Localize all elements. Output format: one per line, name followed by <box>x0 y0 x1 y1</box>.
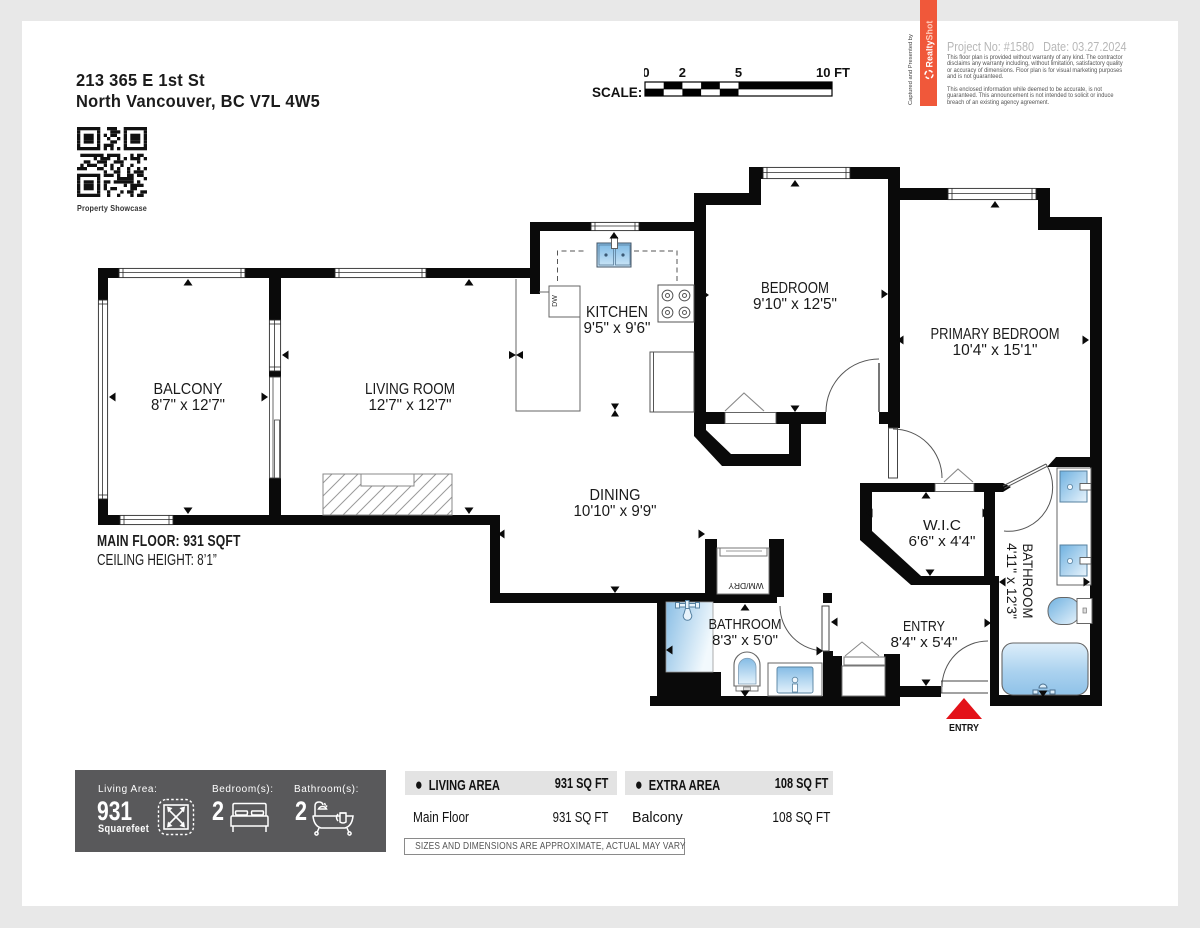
svg-text:12'7" x 12'7": 12'7" x 12'7" <box>369 397 452 414</box>
svg-text:BATHROOM: BATHROOM <box>709 617 782 633</box>
svg-text:ENTRY: ENTRY <box>949 722 979 734</box>
svg-text:KITCHEN: KITCHEN <box>586 304 648 321</box>
svg-text:9'10" x 12'5": 9'10" x 12'5" <box>753 296 837 313</box>
svg-text:9'5" x 9'6": 9'5" x 9'6" <box>584 320 651 337</box>
svg-text:8'4" x 5'4": 8'4" x 5'4" <box>891 635 958 651</box>
svg-text:8'3" x 5'0": 8'3" x 5'0" <box>712 633 778 649</box>
svg-text:DW: DW <box>552 295 559 307</box>
svg-text:10'4" x 15'1": 10'4" x 15'1" <box>953 342 1038 359</box>
svg-text:W.I.C: W.I.C <box>923 518 961 534</box>
svg-text:ENTRY: ENTRY <box>903 619 945 635</box>
svg-text:DINING: DINING <box>590 487 641 504</box>
svg-text:6'6" x 4'4": 6'6" x 4'4" <box>909 534 976 550</box>
svg-text:LIVING ROOM: LIVING ROOM <box>365 381 455 398</box>
svg-text:BEDROOM: BEDROOM <box>761 280 829 297</box>
svg-text:WM/DRY: WM/DRY <box>728 581 764 591</box>
svg-text:PRIMARY BEDROOM: PRIMARY BEDROOM <box>931 326 1060 343</box>
svg-text:BATHROOM: BATHROOM <box>1020 544 1036 619</box>
svg-text:8'7" x 12'7": 8'7" x 12'7" <box>151 397 225 414</box>
svg-text:BALCONY: BALCONY <box>154 381 223 398</box>
svg-text:4'11" x 12'3": 4'11" x 12'3" <box>1004 543 1020 619</box>
svg-text:10'10" x 9'9": 10'10" x 9'9" <box>574 503 657 520</box>
